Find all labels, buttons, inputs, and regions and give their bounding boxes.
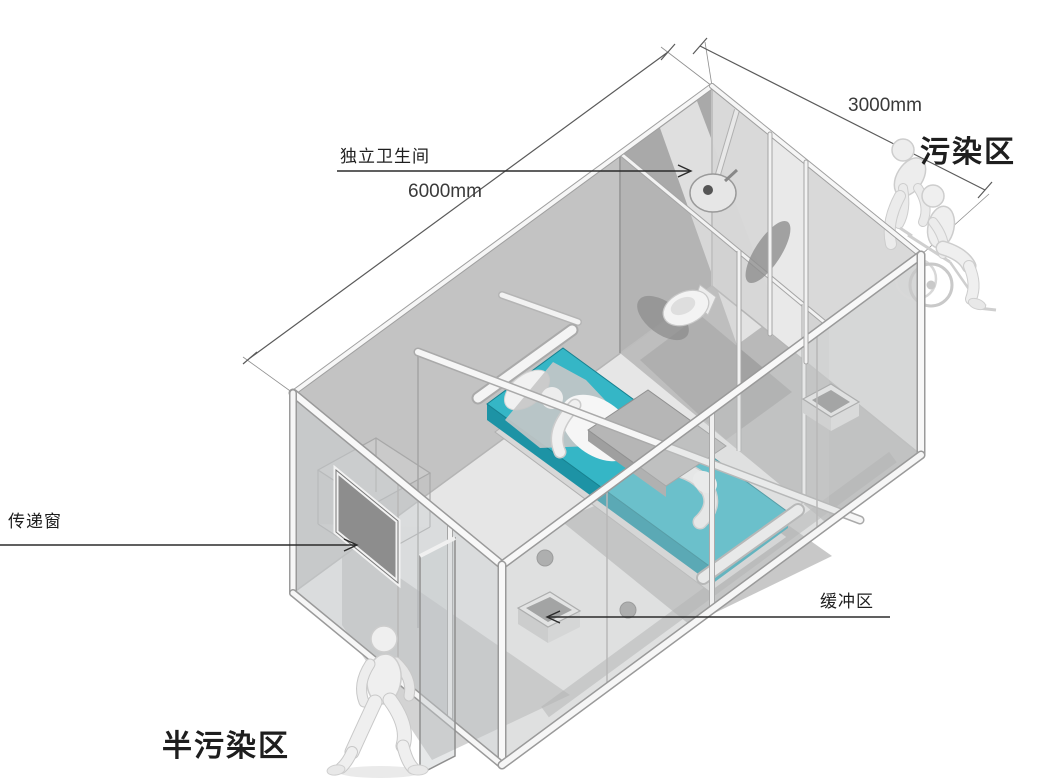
isolation-ward-diagram: 独立卫生间 6000mm 3000mm 污染区 传递窗 缓冲区 半污染区 <box>0 0 1050 779</box>
bathroom-label: 独立卫生间 <box>340 147 430 166</box>
transfer-window-label: 传递窗 <box>8 512 62 531</box>
entrance-glass-door <box>420 538 455 774</box>
length-dimension-label: 6000mm <box>408 181 482 202</box>
shower-head <box>690 174 736 212</box>
caregiver-head <box>892 139 914 161</box>
contaminated-zone-label: 污染区 <box>920 136 1016 169</box>
walking-person-head <box>371 626 397 652</box>
semi-contaminated-zone-label: 半污染区 <box>162 730 290 763</box>
diagram-canvas: 独立卫生间 6000mm 3000mm 污染区 传递窗 缓冲区 半污染区 <box>0 0 1050 779</box>
width-dimension-label: 3000mm <box>848 95 922 116</box>
seated-patient-head <box>922 185 944 207</box>
buffer-zone-label: 缓冲区 <box>820 592 874 611</box>
